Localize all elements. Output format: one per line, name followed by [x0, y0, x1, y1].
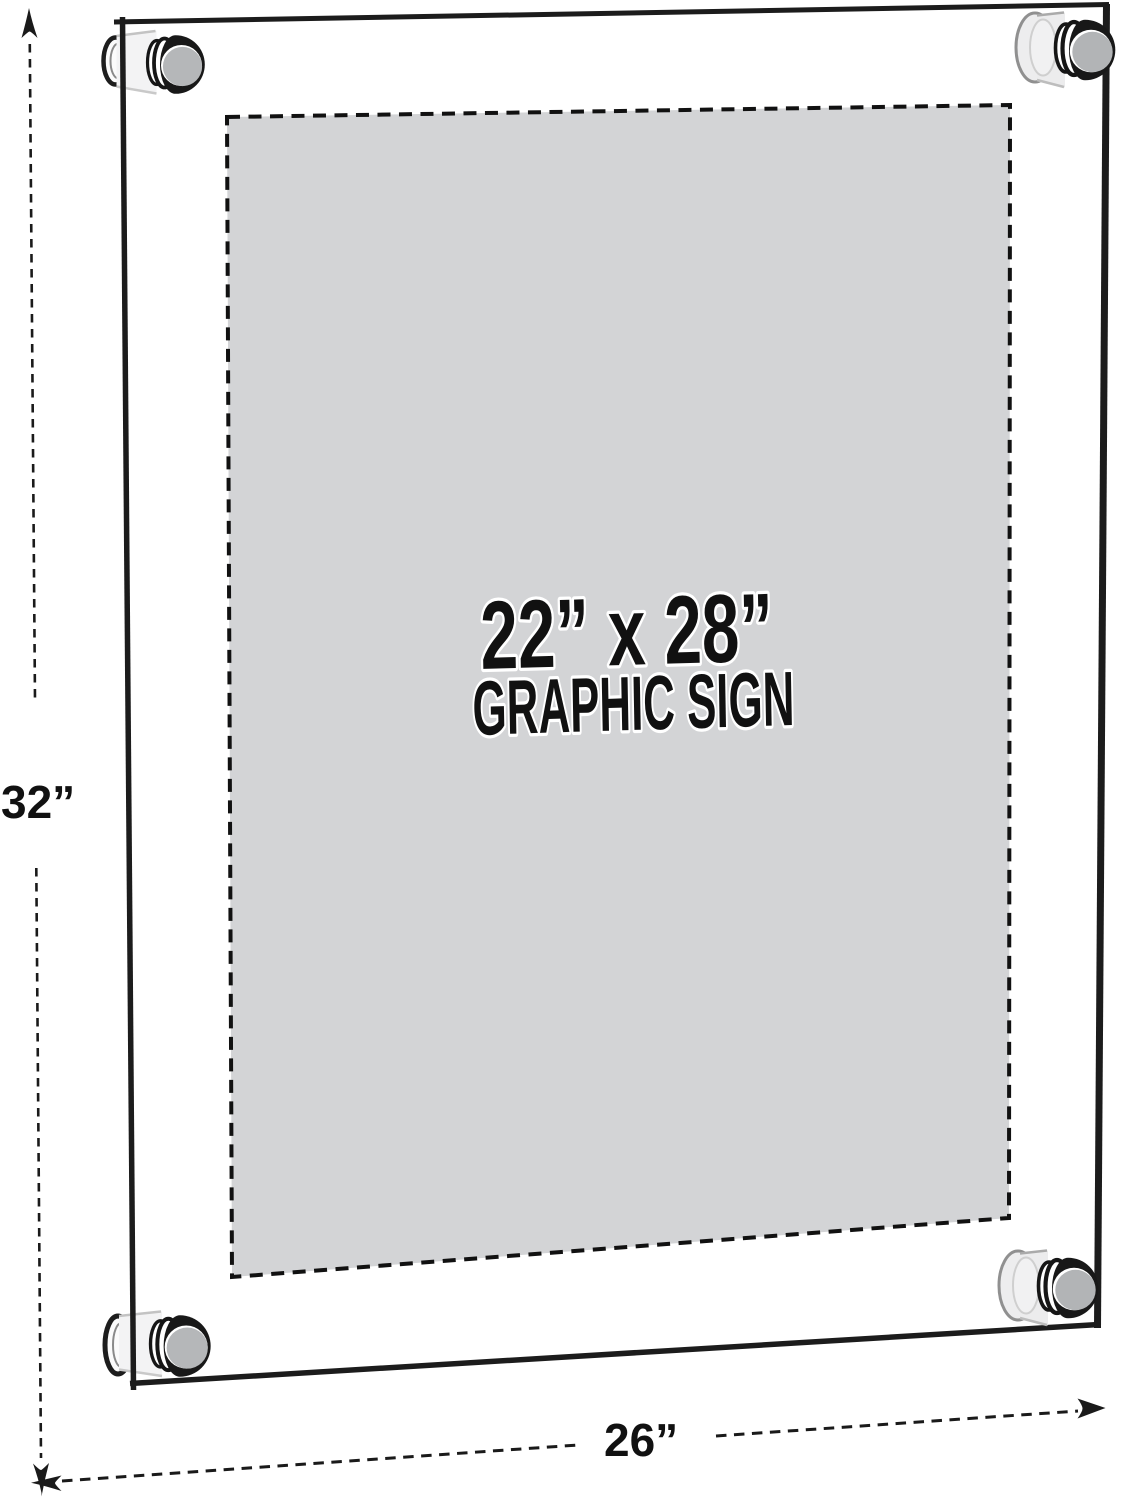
svg-text:GRAPHIC SIGN: GRAPHIC SIGN — [472, 656, 795, 752]
svg-text:32”: 32” — [1, 776, 75, 828]
svg-text:26”: 26” — [604, 1414, 678, 1466]
